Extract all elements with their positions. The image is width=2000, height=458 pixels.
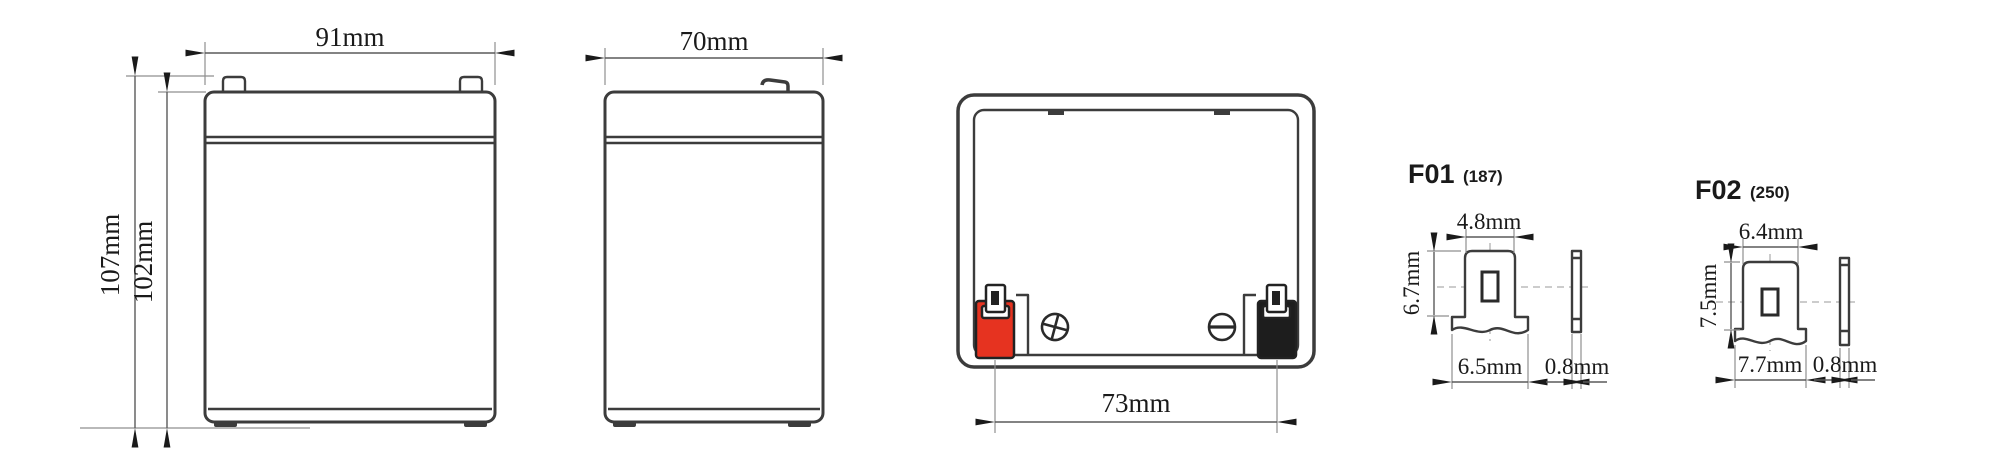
f01-base-width-label: 6.5mm (1458, 354, 1523, 379)
f01-side-profile (1572, 251, 1581, 332)
dim-f01-tab-height: 6.7mm (1399, 251, 1461, 316)
front-overall-height-label: 107mm (95, 214, 125, 297)
dim-f01-tab-width: 4.8mm (1457, 209, 1522, 253)
f01-title: F01 (1408, 159, 1455, 189)
f02-side-profile (1840, 258, 1849, 345)
dim-front-case-height: 102mm (128, 92, 206, 428)
f02-tab-width-label: 6.4mm (1739, 219, 1804, 244)
side-depth-label: 70mm (679, 26, 748, 56)
front-terminal-bump-right (460, 77, 482, 92)
dim-f02-tab-height: 7.5mm (1696, 262, 1740, 330)
top-case-inner (974, 110, 1298, 355)
front-terminal-bump-left (223, 77, 245, 92)
front-case-height-label: 102mm (128, 221, 158, 304)
dim-f02-thickness: 0.8mm (1813, 348, 1878, 388)
side-foot-right (788, 421, 811, 427)
f01-detail: F01 (187) 4.8mm 6.7mm 6.5mm (1399, 159, 1609, 389)
front-view: 91mm 107mm 102mm (80, 22, 495, 428)
terminal-spacing-label: 73mm (1101, 388, 1170, 418)
f01-tab-height-label: 6.7mm (1399, 251, 1424, 316)
battery-dimension-drawing: 91mm 107mm 102mm 70mm (0, 0, 2000, 458)
f02-title: F02 (1695, 175, 1742, 205)
front-foot-right (464, 421, 487, 427)
f02-base-width-label: 7.7mm (1738, 352, 1803, 377)
f01-terminal-slot (1482, 272, 1498, 301)
f01-tab-width-label: 4.8mm (1457, 209, 1522, 234)
top-vent-mark-right (1214, 110, 1230, 115)
f02-detail: F02 (250) 6.4mm 7.5mm 7.7mm (1695, 175, 1877, 388)
side-view: 70mm (605, 26, 823, 427)
dim-f01-thickness: 0.8mm (1545, 334, 1610, 389)
dim-side-depth: 70mm (605, 26, 823, 85)
f02-terminal-slot (1762, 289, 1778, 315)
dim-f02-base-width: 7.7mm (1735, 345, 1806, 388)
top-view: 73mm (958, 95, 1314, 433)
front-battery-case (205, 92, 495, 422)
f02-tab-height-label: 7.5mm (1696, 264, 1721, 329)
top-vent-mark-left (1048, 110, 1064, 115)
f02-size-code: (250) (1750, 183, 1790, 202)
front-width-label: 91mm (315, 22, 384, 52)
dim-f02-tab-width: 6.4mm (1739, 219, 1804, 264)
side-foot-left (613, 421, 636, 427)
f01-size-code: (187) (1463, 167, 1503, 186)
drawing-canvas: 91mm 107mm 102mm 70mm (0, 0, 2000, 458)
dim-f01-base-width: 6.5mm (1452, 334, 1528, 389)
front-foot-left (214, 421, 237, 427)
dim-terminal-spacing: 73mm (995, 360, 1277, 433)
negative-tab-slot (1272, 291, 1280, 305)
dim-front-width: 91mm (205, 22, 495, 85)
side-battery-case (605, 92, 823, 422)
f02-thickness-label: 0.8mm (1813, 352, 1878, 377)
positive-tab-slot (991, 291, 999, 305)
f01-thickness-label: 0.8mm (1545, 354, 1610, 379)
